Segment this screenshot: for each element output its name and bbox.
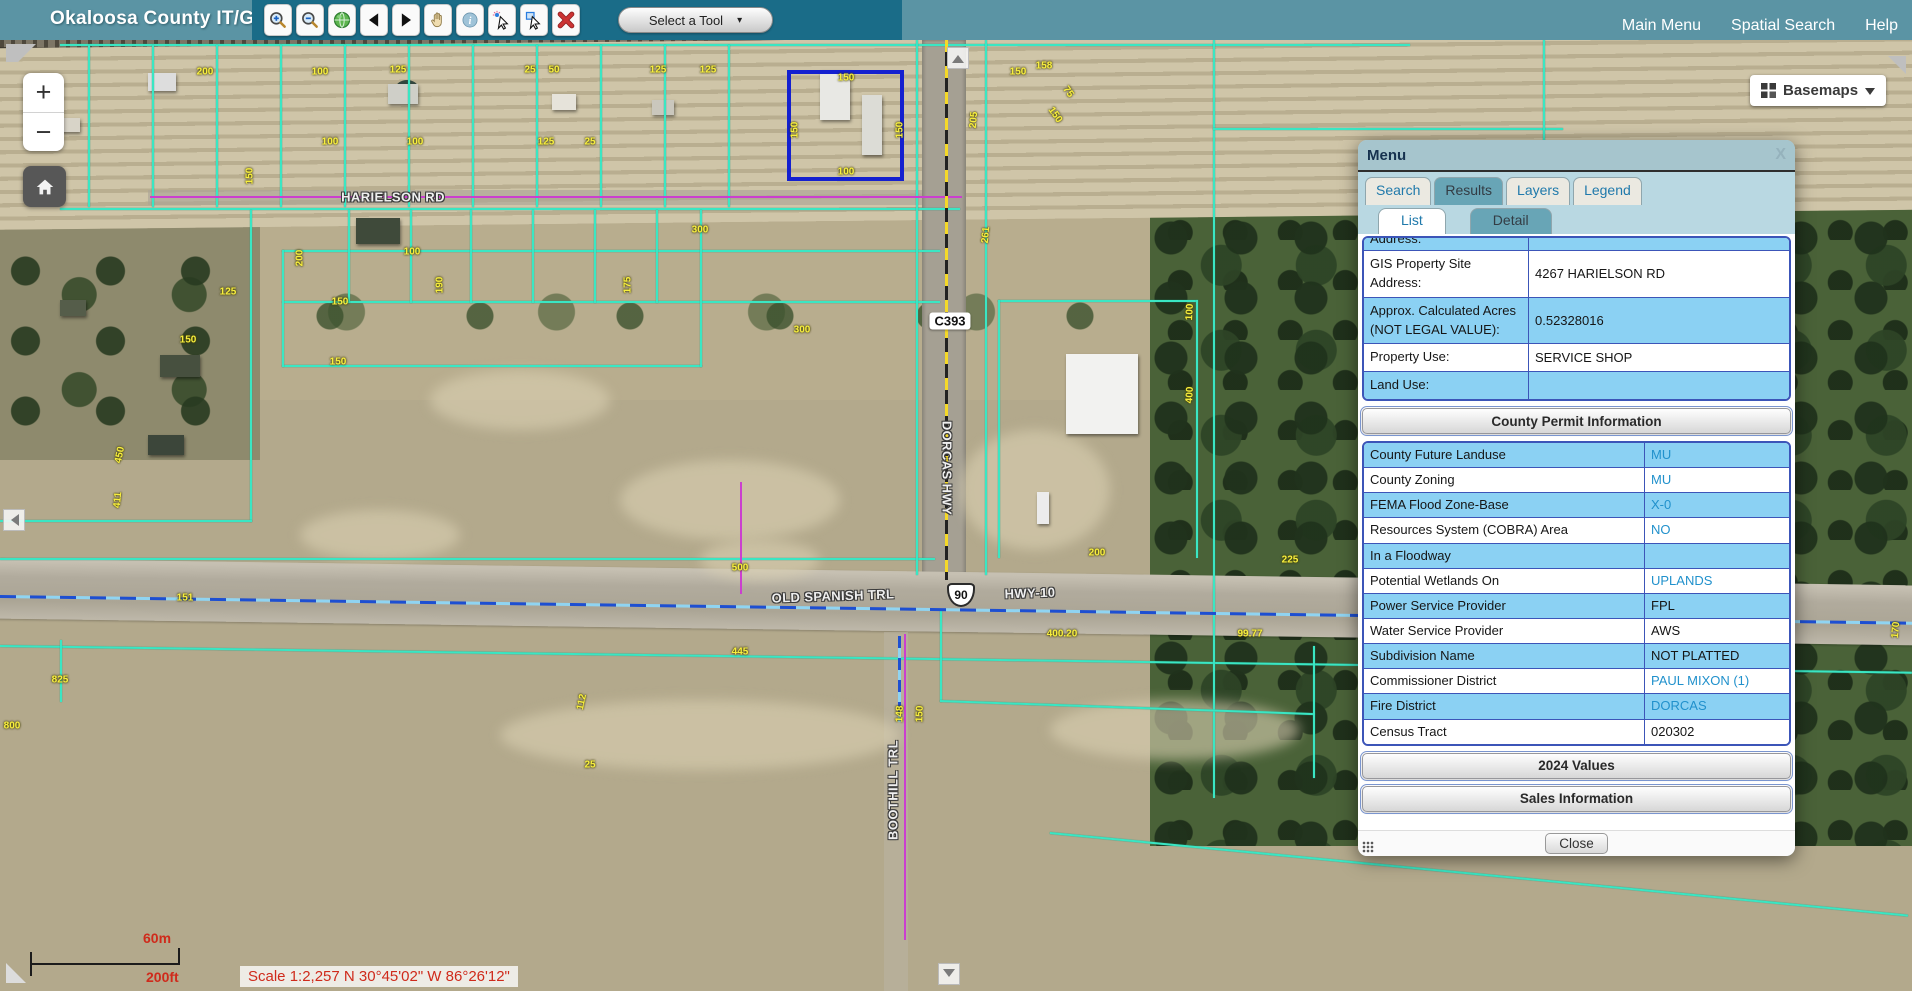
parcel-dimension-label: 200 xyxy=(197,67,214,78)
scale-tick xyxy=(178,948,180,965)
road-label-boothill-trl: BOOTHILL TRL xyxy=(886,740,901,840)
field-label: Potential Wetlands On xyxy=(1364,569,1645,593)
parcel-dimension-label: 100 xyxy=(404,247,421,258)
parcel-dimension-label: 150 xyxy=(245,168,256,185)
parcel-dimension-label: 151 xyxy=(177,593,194,604)
field-value: FPL xyxy=(1645,594,1789,618)
parcel-dimension-label: 150 xyxy=(330,357,347,368)
parcel-dimension-label: 175 xyxy=(623,277,634,294)
county-permit-info-button[interactable]: County Permit Information xyxy=(1362,408,1791,434)
table-row: GIS Property Site Address:4267 HARIELSON… xyxy=(1364,251,1789,298)
parcel-dimension-label: 50 xyxy=(548,65,559,76)
tab-legend[interactable]: Legend xyxy=(1573,177,1642,205)
parcel-line xyxy=(282,301,940,303)
parcel-dimension-label: 500 xyxy=(732,563,749,574)
field-label: Fire District xyxy=(1364,694,1645,718)
parcel-dimension-label: 445 xyxy=(732,647,749,658)
parcel-line xyxy=(282,250,940,252)
sand-patch xyxy=(300,510,460,560)
close-button[interactable]: Close xyxy=(1545,833,1608,854)
parcel-line xyxy=(985,40,987,575)
parcel-line xyxy=(1213,128,1563,130)
tab-search[interactable]: Search xyxy=(1365,177,1431,205)
chevron-down-icon xyxy=(1865,88,1875,100)
parcel-dimension-label: 200 xyxy=(1089,548,1106,559)
building-roof xyxy=(60,300,86,316)
top-links: Main Menu Spatial Search Help xyxy=(1622,0,1898,40)
pan-down-button[interactable] xyxy=(938,963,960,985)
road-label-harielson-rd: HARIELSON RD xyxy=(341,190,445,205)
field-value xyxy=(1645,544,1789,568)
field-label: Power Service Provider xyxy=(1364,594,1645,618)
table-row: County Future LanduseMU xyxy=(1364,443,1789,468)
field-label: Approx. Calculated Acres (NOT LEGAL VALU… xyxy=(1364,298,1529,344)
parcel-dimension-label: 148 xyxy=(894,705,906,722)
home-extent-button[interactable] xyxy=(23,166,66,207)
parcel-line xyxy=(1213,40,1215,798)
zoom-in-button[interactable] xyxy=(264,4,292,36)
parcel-line xyxy=(250,210,252,522)
zoom-in-button[interactable]: + xyxy=(23,73,64,112)
parcel-dimension-label: 825 xyxy=(52,675,69,686)
scale-bar: 60m 200ft Scale 1:2,257 N 30°45'02" W 86… xyxy=(25,928,585,988)
building-roof xyxy=(1037,492,1049,524)
table-row: Fire DistrictDORCAS xyxy=(1364,694,1789,719)
parcel-dimension-label: 200 xyxy=(295,250,306,267)
field-label: Commissioner District xyxy=(1364,669,1645,693)
parcel-dimension-label: 125 xyxy=(390,65,407,76)
field-value-link[interactable]: DORCAS xyxy=(1645,694,1789,718)
panel-tabs: SearchResultsLayersLegend xyxy=(1358,172,1795,205)
parcel-dimension-label: 450 xyxy=(113,446,127,465)
map-corner-handle-top-left[interactable] xyxy=(6,44,36,70)
parcel-line xyxy=(280,45,282,207)
map-corner-handle-bottom-left[interactable] xyxy=(6,963,26,983)
building-roof xyxy=(552,94,576,110)
field-label: Resources System (COBRA) Area xyxy=(1364,518,1645,542)
table-row: Land Use: xyxy=(1364,372,1789,399)
parcel-dimension-label: 100 xyxy=(838,167,855,178)
parcel-line xyxy=(532,210,534,303)
previous-extent-tool-icon xyxy=(364,10,384,30)
resize-grip[interactable] xyxy=(1362,841,1374,853)
parcel-line xyxy=(656,210,658,303)
pan-tool-icon xyxy=(428,10,448,30)
field-value-link[interactable]: UPLANDS xyxy=(1645,569,1789,593)
parcel-dimension-label: 300 xyxy=(692,225,709,236)
zoom-in-tool-icon xyxy=(268,10,288,30)
field-value-link[interactable]: MU xyxy=(1645,443,1789,467)
table-row: County ZoningMU xyxy=(1364,468,1789,493)
arrow-down-icon xyxy=(943,969,955,983)
parcel-dimension-label: 150 xyxy=(332,297,349,308)
pan-button[interactable] xyxy=(424,4,452,36)
menu-panel-header[interactable]: Menu X xyxy=(1358,140,1795,170)
property-info-table: Address:GIS Property Site Address:4267 H… xyxy=(1362,236,1791,401)
identify-button[interactable]: i xyxy=(456,4,484,36)
field-value: 0.52328016 xyxy=(1529,298,1789,344)
zoom-out-button[interactable] xyxy=(296,4,324,36)
parcel-line xyxy=(728,45,730,207)
parcel-dimension-label: 300 xyxy=(794,325,811,336)
map-corner-handle-top-right[interactable] xyxy=(1888,56,1906,74)
field-value: 020302 xyxy=(1645,720,1789,744)
select-by-rectangle-button[interactable] xyxy=(520,4,548,36)
field-value xyxy=(1529,372,1789,399)
table-row: Approx. Calculated Acres (NOT LEGAL VALU… xyxy=(1364,298,1789,345)
parcel-line xyxy=(740,482,742,594)
next-extent-button[interactable] xyxy=(392,4,420,36)
parcel-dimension-label: 125 xyxy=(650,65,667,76)
parcel-line xyxy=(216,45,218,207)
scale-metric-label: 60m xyxy=(143,930,171,946)
select-by-rectangle-tool-icon xyxy=(524,10,544,30)
parcel-dimension-label: 100 xyxy=(1184,303,1196,320)
menu-panel: Menu X SearchResultsLayersLegend ListDet… xyxy=(1358,140,1795,856)
table-row: In a Floodway xyxy=(1364,544,1789,569)
building-roof xyxy=(160,355,200,377)
field-label: Census Tract xyxy=(1364,720,1645,744)
table-row: Resources System (COBRA) AreaNO xyxy=(1364,518,1789,543)
parcel-dimension-label: 800 xyxy=(4,721,21,732)
tab-layers[interactable]: Layers xyxy=(1506,177,1570,205)
table-row: FEMA Flood Zone-BaseX-0 xyxy=(1364,493,1789,518)
parcel-dimension-label: 25 xyxy=(584,137,595,148)
building-roof xyxy=(356,218,400,244)
field-label: County Future Landuse xyxy=(1364,443,1645,467)
parcel-dimension-label: 125 xyxy=(700,65,717,76)
parcel-dimension-label: 150 xyxy=(838,73,855,84)
parcel-dimension-label: 99.77 xyxy=(1237,629,1262,640)
field-value xyxy=(1529,238,1789,250)
toolbar: i Select a Tool ▾ xyxy=(252,0,902,40)
county-permit-table: County Future LanduseMUCounty ZoningMUFE… xyxy=(1362,441,1791,746)
field-label: Address: xyxy=(1364,238,1529,250)
selected-parcel-highlight[interactable] xyxy=(787,70,904,181)
field-value: AWS xyxy=(1645,619,1789,643)
parcel-line xyxy=(940,610,942,702)
parcel-line xyxy=(60,640,62,702)
table-row: Census Tract020302 xyxy=(1364,720,1789,744)
building-roof xyxy=(148,435,184,455)
parcel-dimension-label: 100 xyxy=(407,137,424,148)
sand-patch xyxy=(430,370,610,430)
parcel-line xyxy=(60,208,960,210)
results-subtabs: ListDetail xyxy=(1358,205,1795,234)
tool-select-label: Select a Tool xyxy=(649,13,723,28)
parcel-dimension-label: 150 xyxy=(895,122,906,139)
field-label: GIS Property Site Address: xyxy=(1364,251,1529,297)
identify-tool-icon: i xyxy=(460,10,480,30)
tool-buttons: i xyxy=(264,4,584,36)
parcel-line xyxy=(998,300,1000,558)
parcel-line xyxy=(472,45,474,207)
scale-imperial-label: 200ft xyxy=(146,969,179,985)
basemaps-button[interactable]: Basemaps xyxy=(1750,75,1886,106)
parcel-dimension-label: 400.20 xyxy=(1047,629,1078,640)
panel-close-button[interactable]: X xyxy=(1775,146,1786,164)
parcel-line xyxy=(408,45,410,207)
field-label: Property Use: xyxy=(1364,344,1529,371)
field-value-link[interactable]: MU xyxy=(1645,468,1789,492)
spatial-search-link[interactable]: Spatial Search xyxy=(1731,17,1835,35)
top-bar: Okaloosa County IT/GIS i Select a Tool ▾… xyxy=(0,0,1912,40)
field-label: FEMA Flood Zone-Base xyxy=(1364,493,1645,517)
parcel-dimension-label: 400 xyxy=(1184,386,1196,403)
next-extent-tool-icon xyxy=(396,10,416,30)
field-value: NOT PLATTED xyxy=(1645,644,1789,668)
building-roof xyxy=(388,84,418,104)
table-row: Subdivision NameNOT PLATTED xyxy=(1364,644,1789,669)
parcel-dimension-label: 125 xyxy=(220,287,237,298)
clear-selection-button[interactable] xyxy=(552,4,580,36)
parcel-dimension-label: 150 xyxy=(914,705,926,722)
road-label-c393: C393 xyxy=(929,313,970,330)
parcel-dimension-label: 225 xyxy=(1282,555,1299,566)
parcel-dimension-label: 261 xyxy=(980,226,992,244)
parcel-line xyxy=(600,45,602,207)
parcel-line xyxy=(344,45,346,207)
parcel-dimension-label: 150 xyxy=(1010,67,1027,78)
app-root: Okaloosa County IT/GIS i Select a Tool ▾… xyxy=(0,0,1912,991)
chevron-down-icon: ▾ xyxy=(737,15,742,26)
parcel-line xyxy=(594,210,596,303)
table-row: Property Use:SERVICE SHOP xyxy=(1364,344,1789,372)
previous-extent-button[interactable] xyxy=(360,4,388,36)
parcel-line xyxy=(150,196,962,198)
parcel-line xyxy=(1313,646,1315,778)
parcel-dimension-label: 158 xyxy=(1036,61,1053,72)
zoom-out-button[interactable]: − xyxy=(23,112,64,151)
field-value: SERVICE SHOP xyxy=(1529,344,1789,371)
main-menu-link[interactable]: Main Menu xyxy=(1622,17,1701,35)
map-zoom-control: + − xyxy=(23,73,64,151)
panel-footer: Close xyxy=(1358,830,1795,856)
parcel-dimension-label: 25 xyxy=(524,65,535,76)
help-link[interactable]: Help xyxy=(1865,17,1898,35)
home-icon xyxy=(34,176,56,198)
subtab-list[interactable]: List xyxy=(1378,208,1446,234)
table-row: Potential Wetlands OnUPLANDS xyxy=(1364,569,1789,594)
field-value-link[interactable]: PAUL MIXON (1) xyxy=(1645,669,1789,693)
sales-info-button[interactable]: Sales Information xyxy=(1362,786,1791,812)
full-extent-button[interactable] xyxy=(328,4,356,36)
parcel-line xyxy=(904,634,906,940)
building-roof xyxy=(652,100,674,115)
clear-selection-tool-icon xyxy=(556,10,576,30)
field-label: County Zoning xyxy=(1364,468,1645,492)
parcel-dimension-label: 100 xyxy=(322,137,339,148)
parcel-line xyxy=(916,40,918,575)
field-label: In a Floodway xyxy=(1364,544,1645,568)
field-value-link[interactable]: NO xyxy=(1645,518,1789,542)
results-detail-content: Address:GIS Property Site Address:4267 H… xyxy=(1358,234,1795,830)
values-2024-button[interactable]: 2024 Values xyxy=(1362,753,1791,779)
field-value-link[interactable]: X-0 xyxy=(1645,493,1789,517)
pan-up-button[interactable] xyxy=(947,47,969,69)
table-row: Water Service ProviderAWS xyxy=(1364,619,1789,644)
road-label-dorcas-hwy: DORCAS HWY xyxy=(940,421,955,515)
scale-coordinates-text: Scale 1:2,257 N 30°45'02" W 86°26'12" xyxy=(240,966,518,987)
parcel-line xyxy=(536,45,538,207)
arrow-left-icon xyxy=(5,514,19,526)
app-title: Okaloosa County IT/GIS xyxy=(50,8,273,30)
parcel-line xyxy=(0,520,252,522)
sand-patch xyxy=(700,540,820,580)
full-extent-tool-icon xyxy=(332,10,352,30)
parcel-line xyxy=(88,45,90,207)
tab-results[interactable]: Results xyxy=(1434,177,1503,205)
table-row: Commissioner DistrictPAUL MIXON (1) xyxy=(1364,669,1789,694)
arrow-up-icon xyxy=(952,49,964,63)
parcel-dimension-label: 170 xyxy=(1890,621,1902,639)
road-label-hwy-10: HWY-10 xyxy=(1004,585,1055,602)
pan-left-button[interactable] xyxy=(3,509,25,531)
parcel-dimension-label: 25 xyxy=(584,760,595,771)
parcel-line xyxy=(348,210,350,303)
field-label: Water Service Provider xyxy=(1364,619,1645,643)
parcel-dimension-label: 100 xyxy=(312,67,329,78)
parcel-dimension-label: 190 xyxy=(435,277,446,294)
parcel-line xyxy=(60,44,1410,46)
select-features-tool-icon xyxy=(492,10,512,30)
parcel-line xyxy=(282,250,284,367)
parcel-dimension-label: 205 xyxy=(968,111,980,129)
sand-patch xyxy=(500,700,900,770)
table-row: Power Service ProviderFPL xyxy=(1364,594,1789,619)
table-row: Address: xyxy=(1364,238,1789,251)
parcel-dimension-label: 150 xyxy=(180,335,197,346)
tool-select-dropdown[interactable]: Select a Tool ▾ xyxy=(618,7,773,33)
svg-text:i: i xyxy=(469,16,472,27)
parcel-line xyxy=(998,300,1198,302)
basemaps-label: Basemaps xyxy=(1783,82,1858,99)
basemap-grid-icon xyxy=(1761,83,1776,98)
field-label: Subdivision Name xyxy=(1364,644,1645,668)
field-label: Land Use: xyxy=(1364,372,1529,399)
sand-patch xyxy=(960,430,1110,550)
zoom-out-tool-icon xyxy=(300,10,320,30)
field-value: 4267 HARIELSON RD xyxy=(1529,251,1789,297)
scale-line xyxy=(30,963,180,965)
parcel-line xyxy=(470,210,472,303)
building-roof xyxy=(1066,354,1138,434)
subtab-detail[interactable]: Detail xyxy=(1470,208,1552,234)
sand-patch xyxy=(620,460,840,540)
parcel-dimension-label: 411 xyxy=(112,491,124,508)
parcel-dimension-label: 150 xyxy=(790,122,801,139)
parcel-line xyxy=(152,45,154,207)
parcel-dimension-label: 125 xyxy=(538,137,555,148)
parcel-line xyxy=(1196,300,1198,558)
parcel-line xyxy=(0,558,935,560)
panel-title: Menu xyxy=(1367,147,1406,164)
select-features-button[interactable] xyxy=(488,4,516,36)
